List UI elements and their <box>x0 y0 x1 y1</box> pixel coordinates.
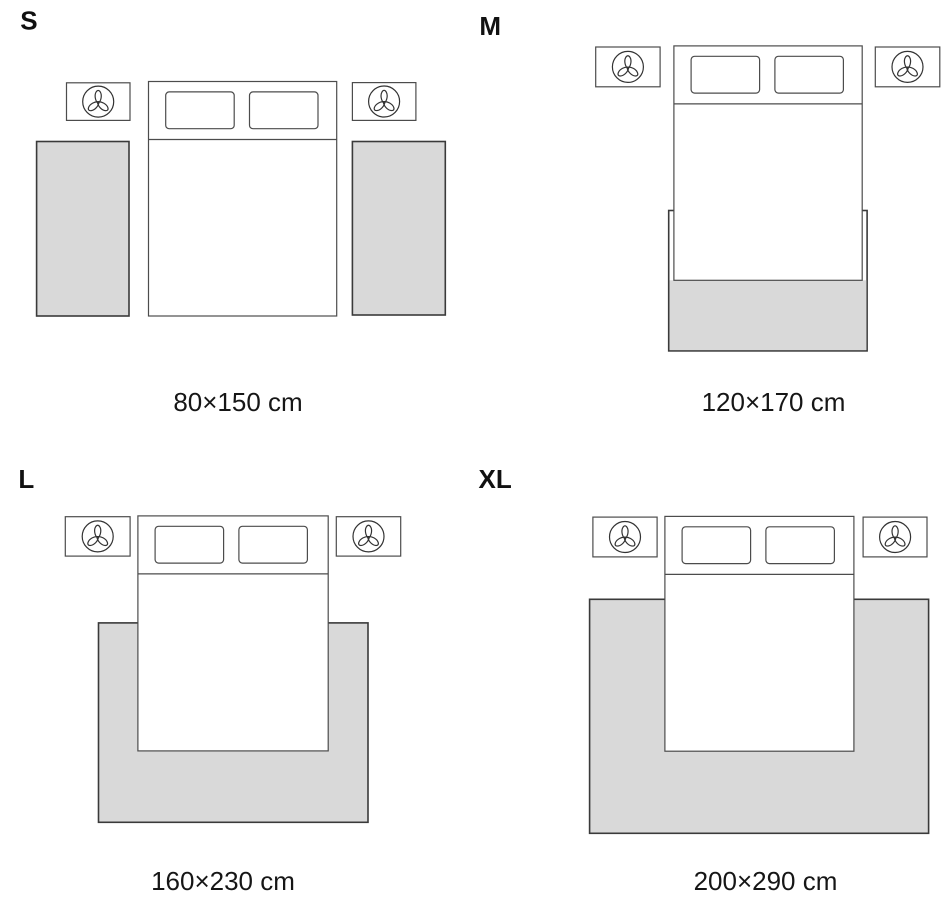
svg-text:80×150 cm: 80×150 cm <box>173 387 302 417</box>
svg-text:120×170 cm: 120×170 cm <box>702 387 846 417</box>
svg-text:XL: XL <box>479 464 512 494</box>
svg-text:200×290 cm: 200×290 cm <box>694 866 838 896</box>
svg-text:160×230 cm: 160×230 cm <box>151 866 295 896</box>
svg-text:L: L <box>18 464 34 494</box>
svg-text:M: M <box>479 11 501 41</box>
svg-text:S: S <box>20 5 37 35</box>
